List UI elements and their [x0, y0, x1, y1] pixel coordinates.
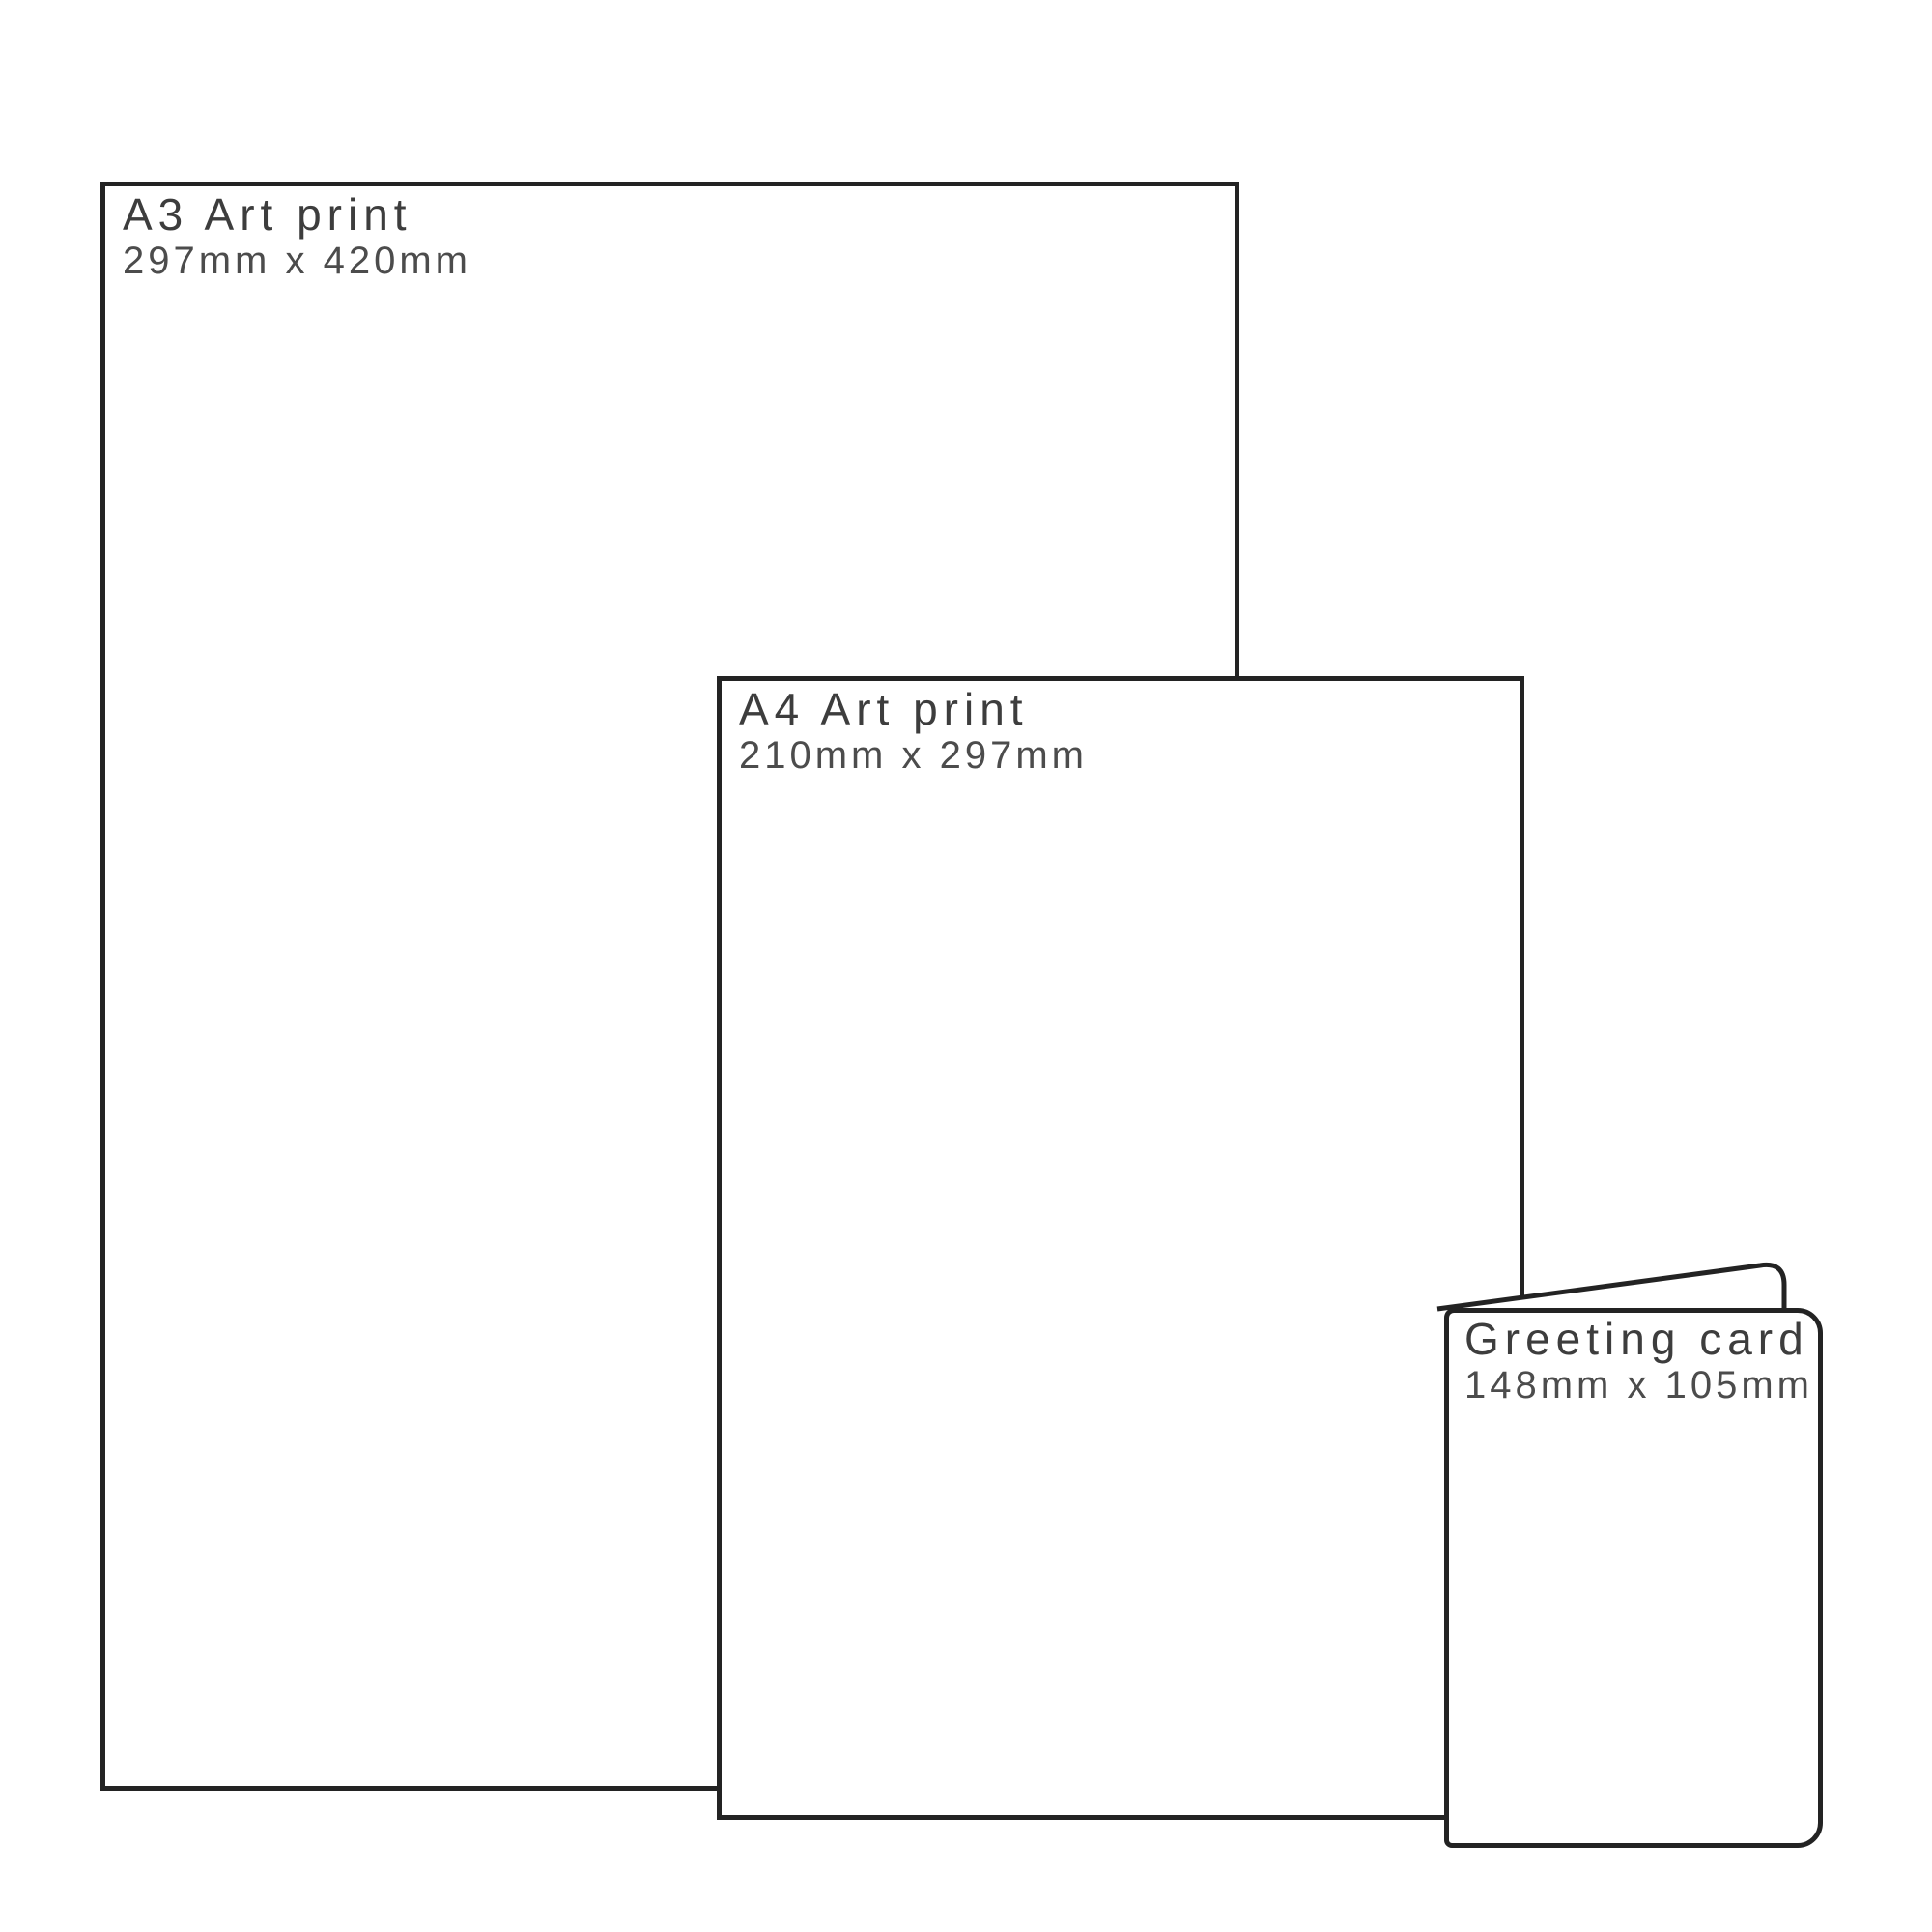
- greeting-card-dimensions: 148mm x 105mm: [1464, 1363, 1818, 1407]
- a3-print-label: A3 Art print 297mm x 420mm: [105, 186, 1235, 283]
- a4-print-outline: A4 Art print 210mm x 297mm: [717, 676, 1524, 1820]
- greeting-card-outline: Greeting card 148mm x 105mm: [1444, 1308, 1823, 1848]
- greeting-card-title: Greeting card: [1464, 1315, 1818, 1363]
- a3-print-title: A3 Art print: [123, 190, 1235, 239]
- a4-print-label: A4 Art print 210mm x 297mm: [722, 681, 1520, 778]
- size-comparison-diagram: A3 Art print 297mm x 420mm A4 Art print …: [0, 0, 1932, 1932]
- a4-print-dimensions: 210mm x 297mm: [739, 733, 1520, 778]
- a4-print-title: A4 Art print: [739, 685, 1520, 733]
- a3-print-dimensions: 297mm x 420mm: [123, 239, 1235, 283]
- greeting-card-label: Greeting card 148mm x 105mm: [1449, 1313, 1818, 1407]
